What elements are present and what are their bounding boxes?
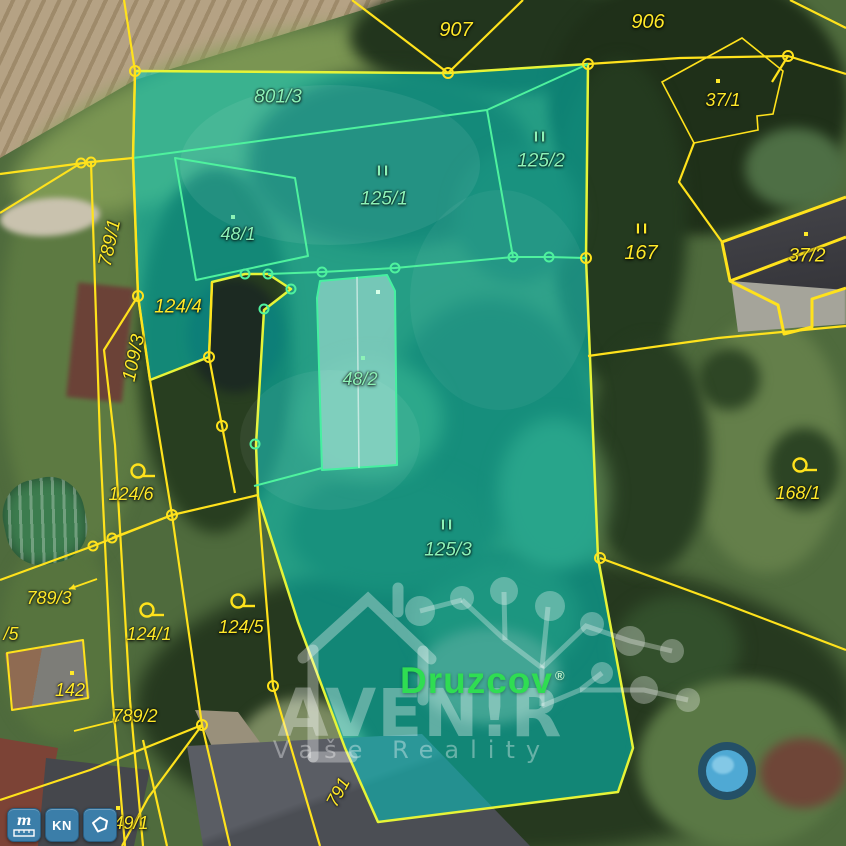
measure-label: m bbox=[17, 814, 32, 828]
parcel-dot bbox=[376, 290, 380, 294]
light-patch bbox=[410, 190, 590, 410]
polygon-icon bbox=[90, 815, 110, 835]
pointer-arrowhead-icon bbox=[69, 584, 76, 590]
watermark-tagline: Vaše Reality bbox=[273, 736, 551, 764]
kn-button[interactable]: KN bbox=[45, 808, 79, 842]
parcel-dot bbox=[716, 79, 720, 83]
parcel-dot bbox=[231, 215, 235, 219]
map-viewport[interactable]: AVEN!R Vaše Reality Druzcov® 90790637/1I… bbox=[0, 0, 846, 846]
registered-mark: ® bbox=[555, 668, 566, 683]
area-select-button[interactable] bbox=[83, 808, 117, 842]
parcel-dot bbox=[361, 356, 365, 360]
measure-button[interactable]: m bbox=[7, 808, 41, 842]
parcel-dot bbox=[804, 232, 808, 236]
parcel-dot bbox=[116, 806, 120, 810]
building-outline-37-1 bbox=[662, 38, 783, 143]
ruler-icon bbox=[13, 829, 35, 837]
pointer-arrow-icon bbox=[74, 720, 119, 731]
light-patch bbox=[180, 85, 480, 245]
building-outline-37-2 bbox=[722, 197, 846, 334]
place-name-druzcov: Druzcov® bbox=[400, 660, 566, 702]
parcel-dot bbox=[70, 671, 74, 675]
building-48-2 bbox=[317, 275, 397, 470]
cadastre-overlay: AVEN!R Vaše Reality bbox=[0, 0, 846, 846]
kn-label: KN bbox=[52, 818, 72, 833]
